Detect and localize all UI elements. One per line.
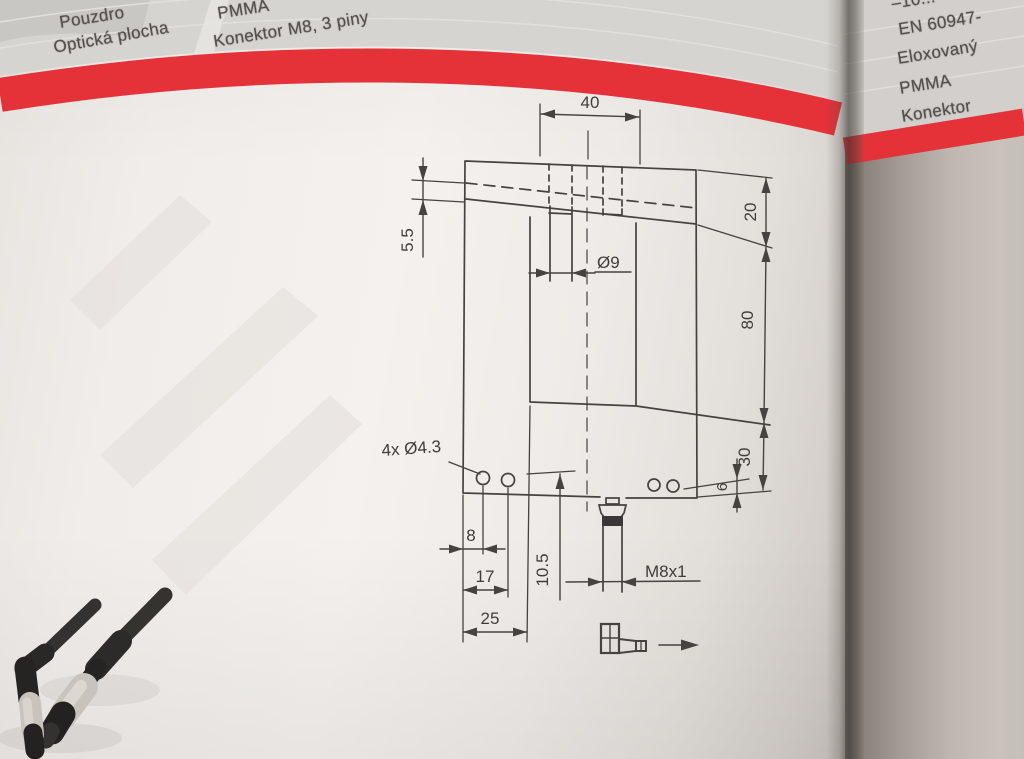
- dimension-texts: 40 Ø9 20 80 30 6 5.5 10.5 8 17 25 M8x1 4…: [381, 93, 760, 628]
- dim-recess: 5.5: [398, 228, 417, 252]
- inner-block: [530, 217, 770, 425]
- extension-lines: [412, 104, 772, 642]
- page-watermark: [70, 195, 362, 595]
- m8-connector-drawing: [599, 498, 626, 592]
- dim-hole-spacing-2: 17: [476, 567, 495, 586]
- arrowheads: [419, 110, 771, 637]
- cable-photo: [0, 595, 165, 753]
- hidden-edge-line: [466, 183, 696, 208]
- m8-cable-straight: [46, 595, 165, 740]
- dim-lower-height: 30: [735, 448, 754, 467]
- mount-hole: [502, 474, 515, 487]
- dim-block-width: 25: [481, 609, 500, 628]
- slot-lines: [549, 164, 622, 210]
- angled-connector-icon: [601, 624, 699, 653]
- dimension-drawing: [412, 104, 772, 653]
- mount-hole: [667, 480, 679, 492]
- dim-axis-offset: 10.5: [533, 553, 552, 586]
- dim-height: 80: [738, 311, 757, 330]
- dimension-lines: [423, 114, 766, 632]
- label-mount-holes: 4x Ø4.3: [381, 437, 442, 460]
- dim-top-width: 40: [581, 93, 600, 112]
- page-artwork: 40 Ø9 20 80 30 6 5.5 10.5 8 17 25 M8x1 4…: [0, 0, 1024, 759]
- dim-depth: 20: [741, 203, 760, 222]
- page-spine-shadow: [826, 0, 864, 759]
- dim-hole-dia: Ø9: [597, 253, 620, 272]
- catalog-photo: 40 Ø9 20 80 30 6 5.5 10.5 8 17 25 M8x1 4…: [0, 0, 1024, 759]
- mount-hole: [648, 479, 660, 491]
- dim-edge-offset: 6: [714, 483, 731, 491]
- dim-thread: M8x1: [645, 562, 687, 581]
- dim-hole-spacing-1: 8: [466, 526, 475, 545]
- step-line: [466, 199, 696, 224]
